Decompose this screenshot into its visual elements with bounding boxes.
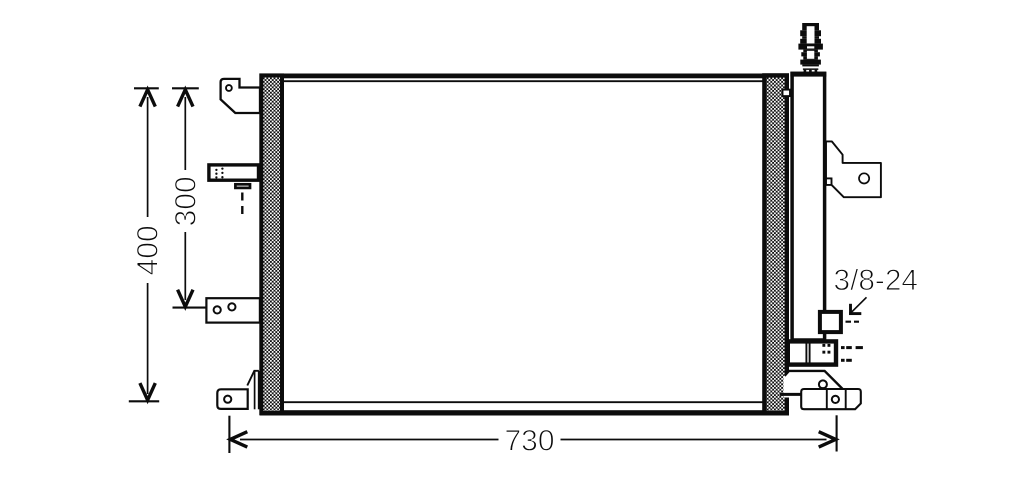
svg-text:3/8-24: 3/8-24	[834, 264, 919, 297]
svg-text:400: 400	[131, 225, 164, 275]
svg-text:300: 300	[169, 176, 202, 226]
svg-text:730: 730	[504, 424, 554, 457]
